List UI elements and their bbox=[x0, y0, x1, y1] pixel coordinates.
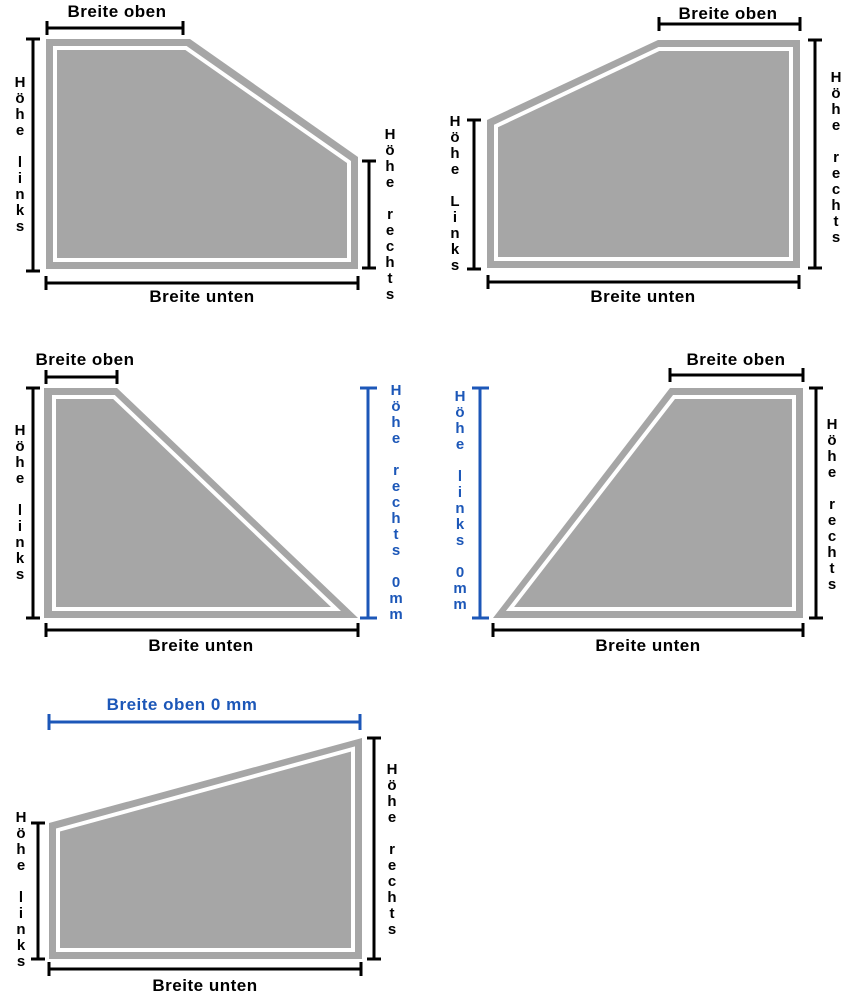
panel-5-dim-hoehe-links bbox=[31, 823, 45, 959]
panel-4-label-breite-oben: Breite oben bbox=[686, 350, 785, 370]
panel-2-label-hoehe-links: H ö h e L i n k s bbox=[450, 114, 461, 274]
panel-3-label-hoehe-rechts-highlight: H ö h e r e c h t s 0 m m bbox=[389, 383, 402, 623]
panel-5-label-breite-unten: Breite unten bbox=[152, 976, 257, 996]
panel-5-label-breite-oben-highlight: Breite oben 0 mm bbox=[107, 695, 258, 715]
panel-4-dim-hoehe-links-highlight bbox=[472, 388, 489, 618]
panel-4-dim-breite-unten bbox=[493, 623, 803, 637]
panel-3-dim-breite-unten bbox=[46, 623, 358, 637]
panel-2-label-breite-unten: Breite unten bbox=[590, 287, 695, 307]
panel-5-dim-hoehe-rechts bbox=[367, 738, 381, 959]
window-shape-diagrams: Breite oben H ö h e l i n k s H ö h e r … bbox=[0, 0, 850, 1000]
panel-4-frame bbox=[493, 388, 803, 618]
panel-1-label-breite-oben: Breite oben bbox=[67, 2, 166, 22]
diagram-layer bbox=[0, 0, 850, 1000]
panel-5-label-hoehe-links: H ö h e l i n k s bbox=[16, 810, 27, 970]
panel-4-shape bbox=[472, 368, 823, 637]
panel-1-label-hoehe-rechts: H ö h e r e c h t s bbox=[385, 127, 396, 303]
panel-1-label-breite-unten: Breite unten bbox=[149, 287, 254, 307]
panel-1-shape bbox=[26, 21, 376, 290]
panel-3-label-breite-oben: Breite oben bbox=[35, 350, 134, 370]
panel-4-dim-breite-oben bbox=[670, 368, 803, 382]
panel-2-shape bbox=[467, 17, 822, 289]
panel-1-label-hoehe-links: H ö h e l i n k s bbox=[15, 75, 26, 235]
panel-2-label-breite-oben: Breite oben bbox=[678, 4, 777, 24]
panel-4-dim-hoehe-rechts bbox=[809, 388, 823, 618]
panel-2-dim-hoehe-links bbox=[467, 120, 481, 269]
panel-1-frame bbox=[46, 39, 358, 269]
panel-2-label-hoehe-rechts: H ö h e r e c h t s bbox=[831, 70, 842, 246]
panel-3-shape bbox=[26, 370, 377, 637]
panel-1-dim-hoehe-links bbox=[26, 39, 40, 271]
panel-3-dim-hoehe-rechts-highlight bbox=[360, 388, 377, 618]
panel-2-frame bbox=[487, 40, 800, 268]
panel-3-dim-hoehe-links bbox=[26, 388, 40, 618]
panel-4-label-hoehe-rechts: H ö h e r e c h t s bbox=[827, 417, 838, 593]
panel-1-dim-hoehe-rechts bbox=[362, 161, 376, 268]
panel-3-dim-breite-oben bbox=[46, 370, 117, 384]
panel-5-label-hoehe-rechts: H ö h e r e c h t s bbox=[387, 762, 398, 938]
panel-3-label-hoehe-links: H ö h e l i n k s bbox=[15, 423, 26, 583]
panel-5-dim-breite-unten bbox=[49, 962, 361, 976]
panel-1-dim-breite-oben bbox=[47, 21, 183, 35]
panel-2-dim-hoehe-rechts bbox=[808, 40, 822, 268]
panel-4-label-breite-unten: Breite unten bbox=[595, 636, 700, 656]
panel-3-label-breite-unten: Breite unten bbox=[148, 636, 253, 656]
panel-5-shape bbox=[31, 714, 381, 976]
panel-5-frame bbox=[49, 738, 362, 959]
panel-4-label-hoehe-links-highlight: H ö h e l i n k s 0 m m bbox=[453, 389, 466, 613]
panel-5-dim-breite-oben-highlight bbox=[49, 714, 360, 730]
